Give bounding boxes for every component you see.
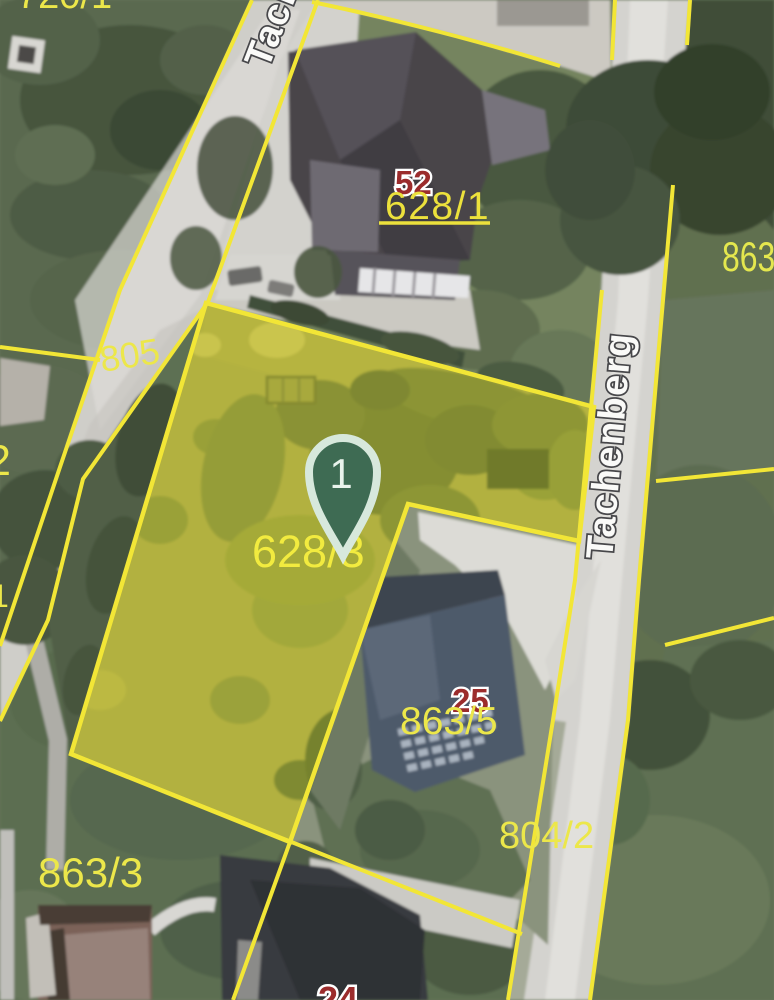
svg-text:863/3: 863/3 [38, 849, 143, 896]
svg-text:863/5: 863/5 [400, 700, 498, 743]
svg-text:24: 24 [318, 979, 358, 1000]
svg-text:1: 1 [0, 578, 9, 614]
svg-text:863/2: 863/2 [722, 233, 774, 280]
svg-text:1: 1 [329, 450, 352, 497]
svg-text:2: 2 [0, 437, 11, 485]
svg-text:720/1: 720/1 [17, 0, 112, 17]
svg-text:804/2: 804/2 [499, 815, 594, 857]
